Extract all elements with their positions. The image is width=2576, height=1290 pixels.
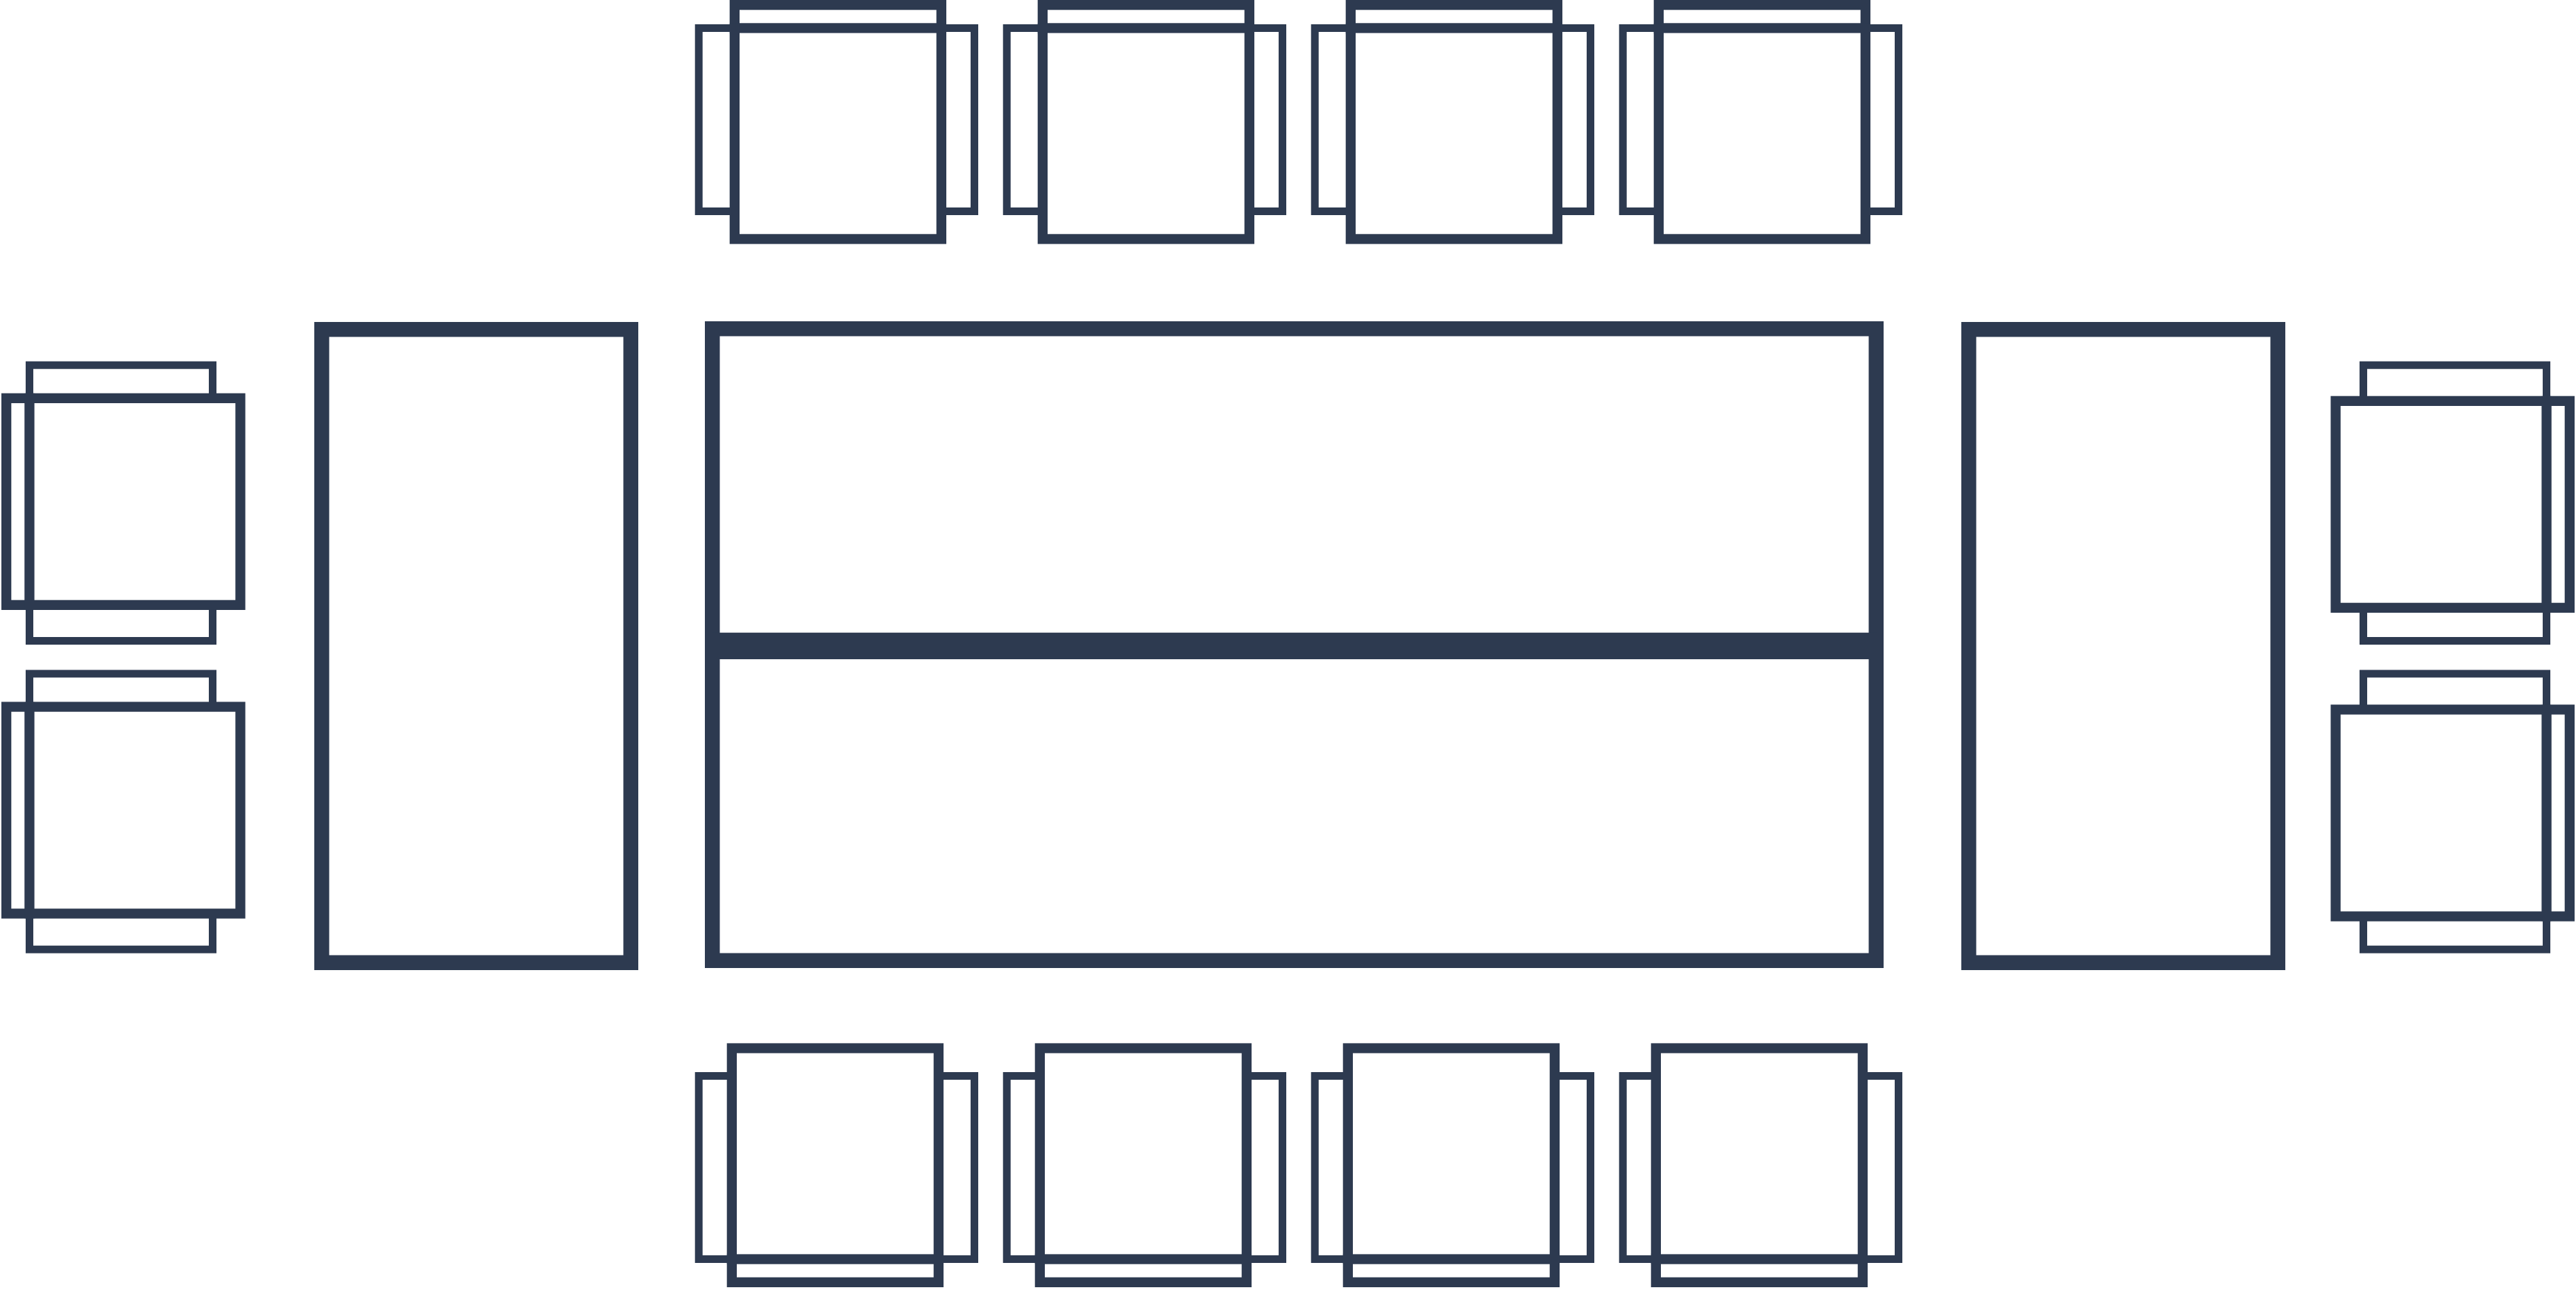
chair-right-2: [2336, 674, 2570, 949]
side-table-right: [1969, 330, 2278, 963]
floor-plan-canvas: [0, 0, 2576, 1290]
chair-bottom-4-seat: [1656, 1049, 1863, 1259]
chair-bottom-1: [699, 1049, 974, 1282]
chair-top-4: [1623, 5, 1898, 239]
chair-top-1-seat: [735, 28, 941, 239]
chair-top-3-seat: [1351, 28, 1558, 239]
chair-bottom-3: [1315, 1049, 1590, 1282]
chair-top-4-seat: [1659, 28, 1866, 239]
side-table-right-top: [1969, 330, 2278, 963]
chair-bottom-2: [1007, 1049, 1282, 1282]
chair-left-2-seat: [29, 707, 240, 914]
chair-left-1-seat: [29, 398, 240, 605]
chair-bottom-2-seat: [1040, 1049, 1247, 1259]
floor-plan: [0, 0, 2576, 1290]
chair-top-1: [699, 5, 974, 239]
main-table-divider: [712, 633, 1877, 659]
chair-top-3: [1315, 5, 1590, 239]
side-table-left-top: [322, 330, 631, 963]
chair-bottom-3-seat: [1348, 1049, 1555, 1259]
chair-top-2: [1007, 5, 1282, 239]
chair-right-1-seat: [2336, 401, 2547, 608]
chair-right-2-seat: [2336, 710, 2547, 917]
chair-left-2: [6, 674, 240, 949]
chair-bottom-4: [1623, 1049, 1898, 1282]
chair-top-2-seat: [1043, 28, 1249, 239]
chair-bottom-1-seat: [732, 1049, 939, 1259]
main-table: [712, 329, 1877, 961]
chair-right-1: [2336, 365, 2570, 640]
chair-left-1: [6, 365, 240, 640]
side-table-left: [322, 330, 631, 963]
